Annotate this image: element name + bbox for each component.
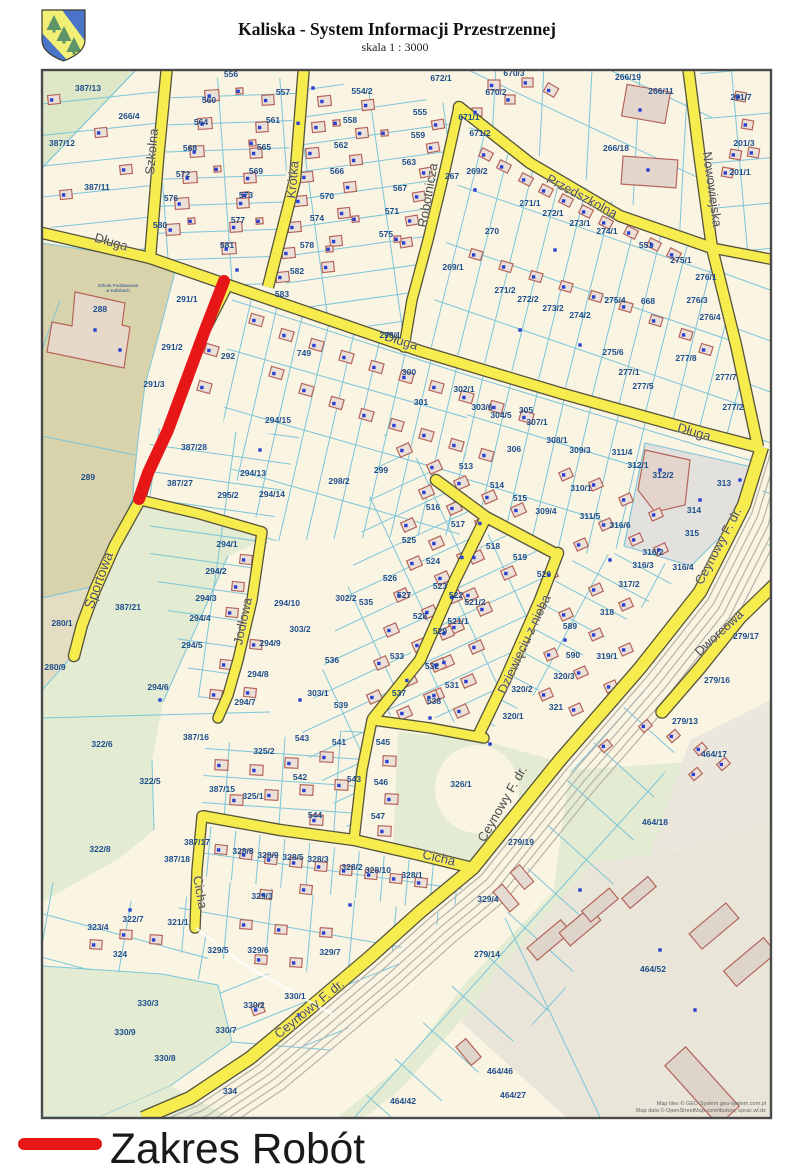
svg-text:582: 582	[290, 266, 304, 276]
svg-text:387/17: 387/17	[184, 837, 210, 847]
svg-text:581: 581	[220, 240, 234, 250]
svg-text:529: 529	[433, 626, 447, 636]
svg-text:325/1: 325/1	[242, 791, 264, 801]
svg-text:330/3: 330/3	[137, 998, 159, 1008]
svg-text:330/7: 330/7	[215, 1025, 237, 1035]
svg-text:524: 524	[426, 556, 440, 566]
svg-text:557: 557	[276, 87, 290, 97]
svg-text:543: 543	[295, 733, 309, 743]
svg-text:516: 516	[426, 502, 440, 512]
svg-text:533: 533	[390, 651, 404, 661]
svg-text:320/2: 320/2	[511, 684, 533, 694]
svg-text:312/2: 312/2	[652, 470, 674, 480]
svg-text:275/1: 275/1	[670, 255, 692, 265]
svg-text:672/1: 672/1	[430, 73, 452, 83]
svg-text:277/8: 277/8	[675, 353, 697, 363]
svg-text:546: 546	[374, 777, 388, 787]
svg-text:271/1: 271/1	[519, 198, 541, 208]
svg-text:513: 513	[459, 461, 473, 471]
svg-text:320/3: 320/3	[553, 671, 575, 681]
svg-text:292: 292	[221, 351, 235, 361]
svg-text:309/4: 309/4	[535, 506, 557, 516]
svg-text:567: 567	[393, 183, 407, 193]
svg-text:307/1: 307/1	[526, 417, 548, 427]
svg-text:294/5: 294/5	[181, 640, 203, 650]
svg-text:313: 313	[717, 478, 731, 488]
svg-text:201/7: 201/7	[730, 92, 752, 102]
svg-text:328/10: 328/10	[365, 865, 391, 875]
svg-text:326/1: 326/1	[450, 779, 472, 789]
svg-text:294/7: 294/7	[234, 697, 256, 707]
svg-text:563: 563	[402, 157, 416, 167]
svg-text:316/4: 316/4	[672, 562, 694, 572]
svg-text:317/2: 317/2	[618, 579, 640, 589]
svg-text:291/1: 291/1	[176, 294, 198, 304]
svg-text:583: 583	[275, 289, 289, 299]
svg-text:274/2: 274/2	[569, 310, 591, 320]
svg-text:279/14: 279/14	[474, 949, 500, 959]
svg-text:322/6: 322/6	[91, 739, 113, 749]
svg-text:201/1: 201/1	[729, 167, 751, 177]
svg-text:266/11: 266/11	[648, 86, 674, 96]
svg-text:311/5: 311/5	[580, 511, 601, 521]
svg-text:387/21: 387/21	[115, 602, 141, 612]
svg-text:273/1: 273/1	[569, 218, 591, 228]
svg-text:291/2: 291/2	[161, 342, 183, 352]
svg-text:387/18: 387/18	[164, 854, 190, 864]
svg-text:535: 535	[359, 597, 373, 607]
svg-text:316/2: 316/2	[642, 547, 664, 557]
svg-text:322/7: 322/7	[122, 914, 144, 924]
svg-text:668: 668	[641, 296, 655, 306]
svg-text:322/5: 322/5	[139, 776, 161, 786]
svg-text:514: 514	[490, 480, 504, 490]
svg-text:464/42: 464/42	[390, 1096, 416, 1106]
svg-text:316/6: 316/6	[609, 520, 631, 530]
svg-text:464/17: 464/17	[701, 749, 727, 759]
svg-text:302/2: 302/2	[335, 593, 357, 603]
svg-text:555: 555	[413, 107, 427, 117]
svg-text:316/3: 316/3	[632, 560, 654, 570]
svg-text:Map tiles © GEO-System gea-sys: Map tiles © GEO-System gea-system.com.pl	[657, 1100, 766, 1107]
svg-text:298/1: 298/1	[379, 330, 401, 340]
svg-text:311/4: 311/4	[612, 447, 633, 457]
svg-text:280/9: 280/9	[44, 662, 66, 672]
svg-text:314: 314	[687, 505, 701, 515]
svg-text:464/27: 464/27	[500, 1090, 526, 1100]
svg-text:321: 321	[549, 702, 563, 712]
svg-text:328/1: 328/1	[401, 870, 423, 880]
svg-text:330/1: 330/1	[284, 991, 306, 1001]
svg-text:564: 564	[194, 117, 208, 127]
svg-text:561: 561	[266, 115, 280, 125]
svg-text:521/1: 521/1	[447, 616, 469, 626]
svg-text:303/2: 303/2	[289, 624, 311, 634]
svg-text:303/1: 303/1	[307, 688, 329, 698]
svg-text:295/2: 295/2	[217, 490, 239, 500]
svg-text:302/1: 302/1	[453, 384, 475, 394]
svg-text:298/2: 298/2	[328, 476, 350, 486]
svg-text:304/5: 304/5	[490, 410, 512, 420]
svg-text:Map data © OpenStreetMap contr: Map data © OpenStreetMap contributors, o…	[636, 1107, 766, 1114]
svg-text:294/2: 294/2	[205, 566, 227, 576]
svg-text:551: 551	[639, 240, 653, 250]
svg-text:573: 573	[239, 190, 253, 200]
svg-text:519: 519	[513, 552, 527, 562]
svg-text:328/2: 328/2	[341, 862, 363, 872]
svg-text:523: 523	[433, 581, 447, 591]
svg-text:570: 570	[320, 191, 334, 201]
svg-text:543: 543	[347, 774, 361, 784]
svg-text:330/9: 330/9	[114, 1027, 136, 1037]
svg-text:536: 536	[325, 655, 339, 665]
svg-text:300: 300	[402, 367, 416, 377]
svg-text:526: 526	[383, 573, 397, 583]
svg-text:275/4: 275/4	[604, 295, 626, 305]
svg-text:558: 558	[343, 115, 357, 125]
svg-text:515: 515	[513, 493, 527, 503]
svg-text:562: 562	[334, 140, 348, 150]
svg-text:671/2: 671/2	[469, 128, 491, 138]
svg-text:272/1: 272/1	[542, 208, 564, 218]
svg-text:566: 566	[330, 166, 344, 176]
svg-text:269/1: 269/1	[442, 262, 464, 272]
svg-text:578: 578	[300, 240, 314, 250]
svg-text:329/4: 329/4	[477, 894, 499, 904]
svg-text:323/4: 323/4	[87, 922, 109, 932]
svg-text:387/28: 387/28	[181, 442, 207, 452]
svg-text:273/2: 273/2	[542, 303, 564, 313]
svg-text:538: 538	[427, 696, 441, 706]
svg-text:305: 305	[519, 405, 533, 415]
svg-text:325/2: 325/2	[253, 746, 275, 756]
svg-text:329/7: 329/7	[319, 947, 341, 957]
svg-text:580: 580	[153, 220, 167, 230]
svg-text:571: 571	[385, 206, 399, 216]
svg-text:321/1: 321/1	[167, 917, 189, 927]
svg-text:554/2: 554/2	[351, 86, 373, 96]
svg-text:387/15: 387/15	[209, 784, 235, 794]
svg-text:590: 590	[566, 650, 580, 660]
svg-text:322/8: 322/8	[89, 844, 111, 854]
svg-text:527: 527	[397, 590, 411, 600]
svg-text:541: 541	[332, 737, 346, 747]
svg-text:289: 289	[81, 472, 95, 482]
svg-text:328/9: 328/9	[257, 850, 279, 860]
svg-text:387/13: 387/13	[75, 83, 101, 93]
svg-text:318: 318	[600, 607, 614, 617]
svg-text:522: 522	[449, 590, 463, 600]
svg-text:294/8: 294/8	[247, 669, 269, 679]
svg-text:330/8: 330/8	[154, 1053, 176, 1063]
svg-text:329/5: 329/5	[207, 945, 229, 955]
svg-text:294/1: 294/1	[216, 539, 238, 549]
svg-text:387/11: 387/11	[84, 182, 110, 192]
svg-text:329/6: 329/6	[247, 945, 269, 955]
svg-text:464/18: 464/18	[642, 817, 668, 827]
svg-text:294/13: 294/13	[240, 468, 266, 478]
svg-text:324: 324	[113, 949, 127, 959]
svg-text:299: 299	[374, 465, 388, 475]
svg-text:531: 531	[445, 680, 459, 690]
svg-text:277/2: 277/2	[722, 402, 744, 412]
svg-text:275/6: 275/6	[602, 347, 624, 357]
svg-text:315: 315	[685, 528, 699, 538]
svg-text:671/1: 671/1	[458, 112, 480, 122]
svg-text:201/3: 201/3	[733, 138, 755, 148]
svg-text:276/4: 276/4	[699, 312, 721, 322]
svg-text:547: 547	[371, 811, 385, 821]
svg-text:387/27: 387/27	[167, 478, 193, 488]
svg-text:544: 544	[308, 810, 322, 820]
svg-text:387/12: 387/12	[49, 138, 75, 148]
svg-text:670/2: 670/2	[485, 87, 507, 97]
svg-text:skala 1 : 3000: skala 1 : 3000	[362, 40, 429, 54]
svg-text:537: 537	[392, 688, 406, 698]
svg-text:279/16: 279/16	[704, 675, 730, 685]
svg-text:291/3: 291/3	[143, 379, 165, 389]
svg-text:294/14: 294/14	[259, 489, 285, 499]
svg-text:306: 306	[507, 444, 521, 454]
svg-text:572: 572	[176, 169, 190, 179]
svg-text:559: 559	[411, 130, 425, 140]
svg-text:Kaliska - System Informacji Pr: Kaliska - System Informacji Przestrzenne…	[238, 19, 556, 39]
svg-text:319/1: 319/1	[596, 651, 618, 661]
svg-text:280/1: 280/1	[51, 618, 73, 628]
svg-text:565: 565	[257, 142, 271, 152]
svg-text:320/1: 320/1	[502, 711, 524, 721]
svg-text:574: 574	[310, 213, 324, 223]
svg-text:309/3: 309/3	[569, 445, 591, 455]
svg-text:520: 520	[537, 569, 551, 579]
svg-text:294/3: 294/3	[195, 593, 217, 603]
svg-text:277/7: 277/7	[715, 372, 737, 382]
svg-text:518: 518	[486, 541, 500, 551]
svg-text:269/2: 269/2	[466, 166, 488, 176]
svg-text:589: 589	[563, 621, 577, 631]
svg-text:294/9: 294/9	[259, 638, 281, 648]
svg-text:266/19: 266/19	[615, 72, 641, 82]
svg-text:276/1: 276/1	[695, 272, 717, 282]
svg-text:279/17: 279/17	[733, 631, 759, 641]
svg-text:542: 542	[293, 772, 307, 782]
svg-text:575: 575	[379, 229, 393, 239]
svg-text:521/2: 521/2	[464, 597, 486, 607]
svg-text:328/3: 328/3	[307, 854, 329, 864]
svg-text:525: 525	[402, 535, 416, 545]
svg-text:308/1: 308/1	[546, 435, 568, 445]
svg-text:328/8: 328/8	[232, 846, 254, 856]
svg-text:301: 301	[414, 397, 428, 407]
svg-text:528: 528	[413, 611, 427, 621]
svg-text:464/46: 464/46	[487, 1066, 513, 1076]
svg-text:569: 569	[249, 166, 263, 176]
svg-text:294/10: 294/10	[274, 598, 300, 608]
svg-text:Zakres Robót: Zakres Robót	[110, 1126, 365, 1173]
svg-text:277/1: 277/1	[618, 367, 640, 377]
svg-text:749: 749	[297, 348, 311, 358]
svg-text:329/3: 329/3	[251, 891, 273, 901]
svg-text:279/19: 279/19	[508, 837, 534, 847]
svg-text:330/2: 330/2	[243, 1000, 265, 1010]
svg-text:312/1: 312/1	[627, 460, 649, 470]
svg-text:277/5: 277/5	[632, 381, 654, 391]
svg-text:288: 288	[93, 304, 107, 314]
svg-text:464/52: 464/52	[640, 964, 666, 974]
svg-text:539: 539	[334, 700, 348, 710]
svg-text:276/3: 276/3	[686, 295, 708, 305]
svg-text:267: 267	[445, 171, 459, 181]
svg-text:328/5: 328/5	[282, 852, 304, 862]
svg-text:577: 577	[231, 215, 245, 225]
svg-text:294/6: 294/6	[147, 682, 169, 692]
svg-text:560: 560	[202, 95, 216, 105]
svg-text:334: 334	[223, 1086, 237, 1096]
svg-text:387/16: 387/16	[183, 732, 209, 742]
svg-text:w Kaliskach: w Kaliskach	[106, 288, 130, 293]
svg-text:270: 270	[485, 226, 499, 236]
svg-text:517: 517	[451, 519, 465, 529]
svg-text:545: 545	[376, 737, 390, 747]
svg-text:576: 576	[164, 193, 178, 203]
svg-text:310/1: 310/1	[570, 483, 592, 493]
svg-text:274/1: 274/1	[596, 226, 618, 236]
svg-text:266/18: 266/18	[603, 143, 629, 153]
svg-text:279/13: 279/13	[672, 716, 698, 726]
svg-text:294/15: 294/15	[265, 415, 291, 425]
svg-text:294/4: 294/4	[189, 613, 211, 623]
svg-text:272/2: 272/2	[517, 294, 539, 304]
svg-text:266/4: 266/4	[118, 111, 140, 121]
svg-text:271/2: 271/2	[494, 285, 516, 295]
svg-text:568: 568	[183, 143, 197, 153]
svg-text:532: 532	[425, 661, 439, 671]
